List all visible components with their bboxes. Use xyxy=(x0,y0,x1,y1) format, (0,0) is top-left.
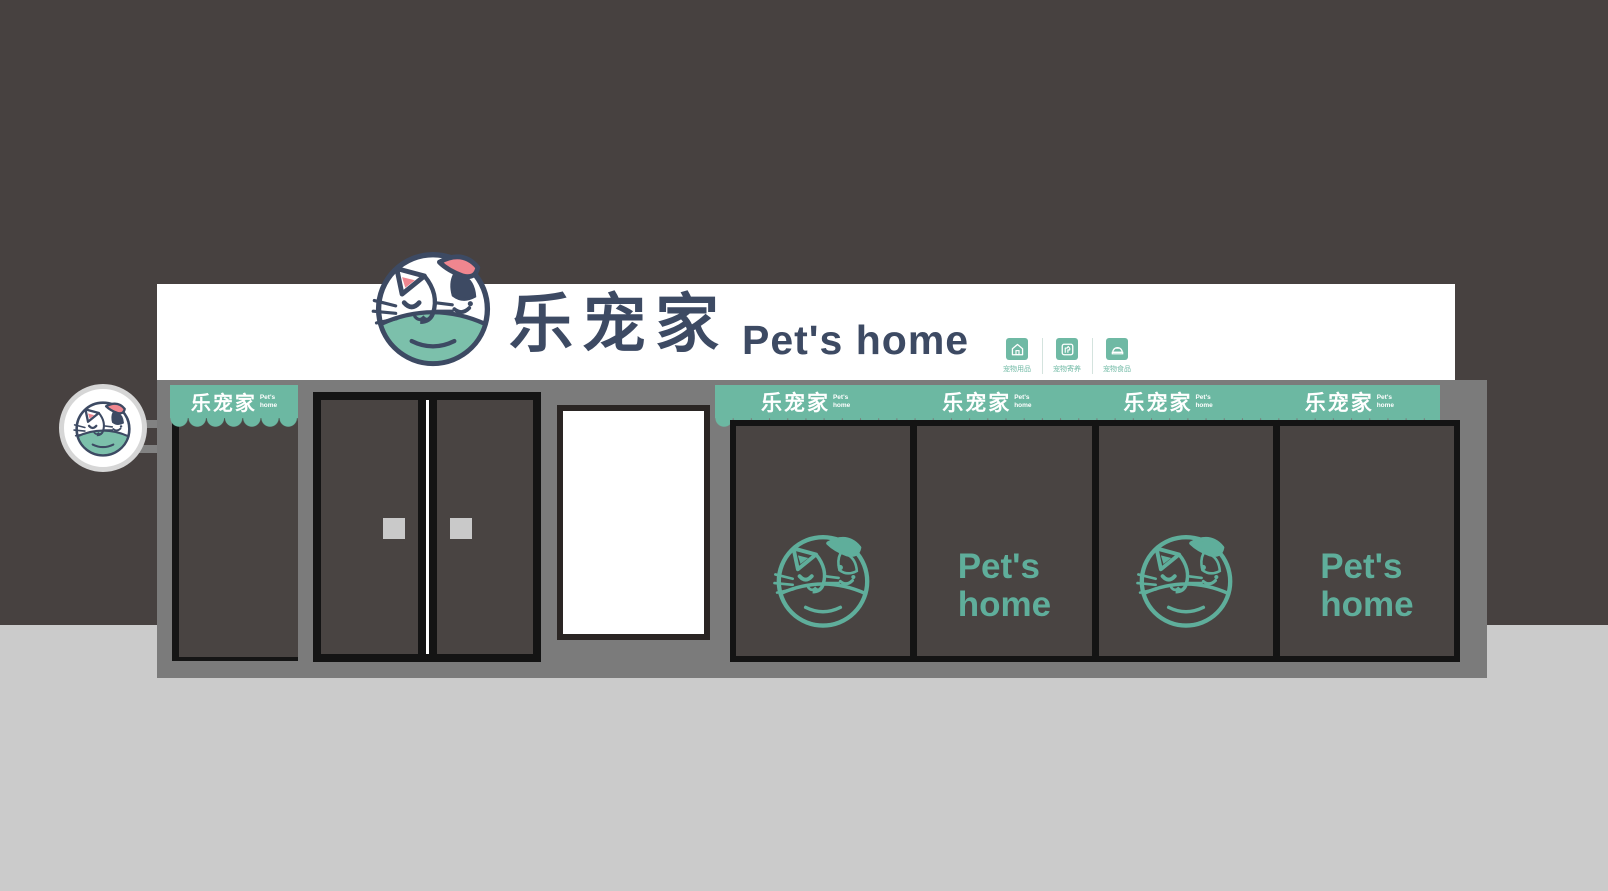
awning-en-line2: home xyxy=(1195,402,1212,409)
services-row: 宠物用品 宠物寄养 宠物食品 xyxy=(994,338,1140,374)
pet-logo-icon xyxy=(369,247,497,369)
awning-en-line1: Pet's xyxy=(1195,394,1210,401)
window-panel: Pet's home xyxy=(917,426,1091,656)
door-panel-right xyxy=(437,400,534,654)
awning-canopy: 乐宠家 Pet'shome 乐宠家 Pet'shome 乐宠家 Pet'shom… xyxy=(715,385,1440,418)
awning-en-line2: home xyxy=(833,402,850,409)
awning-brand-cn: 乐宠家 xyxy=(1305,387,1374,417)
brand-name-cn: 乐宠家 xyxy=(509,286,728,363)
awning-brand-cn: 乐宠家 xyxy=(191,387,257,416)
awning-brand-lockup: 乐宠家 Pet'shome xyxy=(1305,387,1394,417)
awning-en-line2: home xyxy=(1377,402,1394,409)
service-item-supplies: 宠物用品 xyxy=(994,338,1040,374)
facade: 乐宠家 Pet's home xyxy=(157,380,1487,678)
display-windows: Pet's home Pet's home xyxy=(730,420,1460,662)
window-text-line1: Pet's xyxy=(958,547,1040,586)
divider xyxy=(1042,338,1043,374)
awning-scallops xyxy=(170,418,298,427)
awning-brand-cn: 乐宠家 xyxy=(761,387,830,417)
pet-logo-outline-icon xyxy=(1134,531,1238,630)
awning-en-line1: Pet's xyxy=(1377,394,1392,401)
left-window-panel xyxy=(172,398,298,661)
awning-en-line1: Pet's xyxy=(260,394,275,401)
service-label: 宠物用品 xyxy=(1003,364,1031,374)
window-text-line2: home xyxy=(958,585,1051,624)
left-awning: 乐宠家 Pet's home xyxy=(170,385,298,427)
awning-brand-en: Pet'shome xyxy=(833,394,850,409)
awning-brand-en: Pet'shome xyxy=(1377,394,1394,409)
awning-brand-en: Pet'shome xyxy=(1014,394,1031,409)
awning-en-line1: Pet's xyxy=(1014,394,1029,401)
house-icon xyxy=(1006,338,1028,360)
window-panel: Pet's home xyxy=(1280,426,1454,656)
service-item-food: 宠物食品 xyxy=(1094,338,1140,374)
window-brand-text: Pet's home xyxy=(1320,548,1413,624)
food-bowl-icon xyxy=(1106,338,1128,360)
awning-brand-lockup: 乐宠家 Pet'shome xyxy=(1123,387,1212,417)
awning-brand-lockup: 乐宠家 Pet's home xyxy=(191,387,277,416)
service-label: 宠物寄养 xyxy=(1053,364,1081,374)
window-panel xyxy=(1099,426,1273,656)
awning-brand-cn: 乐宠家 xyxy=(942,387,1011,417)
divider xyxy=(1092,338,1093,374)
door-gap xyxy=(418,400,437,654)
window-brand-text: Pet's home xyxy=(958,548,1051,624)
brand-name-en: Pet's home xyxy=(742,317,969,364)
window-text-line1: Pet's xyxy=(1320,547,1402,586)
service-item-boarding: 宠物寄养 xyxy=(1044,338,1090,374)
entrance-doors xyxy=(313,392,541,662)
door-panel-left xyxy=(321,400,418,654)
dog-icon xyxy=(1056,338,1078,360)
storefront-scene: 乐宠家 Pet's home 宠物用品 宠物寄养 宠物食品 xyxy=(0,0,1608,891)
poster-lightbox xyxy=(557,405,710,640)
pet-logo-outline-icon xyxy=(771,531,875,630)
pet-logo-icon xyxy=(72,399,134,458)
door-handle xyxy=(450,518,472,539)
awning-canopy: 乐宠家 Pet's home xyxy=(170,385,298,418)
service-label: 宠物食品 xyxy=(1103,364,1131,374)
blade-sign-disc xyxy=(59,384,147,472)
window-text-line2: home xyxy=(1320,585,1413,624)
awning-brand-cn: 乐宠家 xyxy=(1123,387,1192,417)
awning-brand-en: Pet'shome xyxy=(1195,394,1212,409)
signboard: 乐宠家 Pet's home 宠物用品 宠物寄养 宠物食品 xyxy=(157,284,1455,381)
door-handle xyxy=(383,518,405,539)
awning-en-line2: home xyxy=(260,402,277,409)
awning-brand-en: Pet's home xyxy=(260,394,277,409)
awning-brand-lockup: 乐宠家 Pet'shome xyxy=(761,387,850,417)
awning-en-line2: home xyxy=(1014,402,1031,409)
window-panel xyxy=(736,426,910,656)
awning-brand-lockup: 乐宠家 Pet'shome xyxy=(942,387,1031,417)
awning-en-line1: Pet's xyxy=(833,394,848,401)
